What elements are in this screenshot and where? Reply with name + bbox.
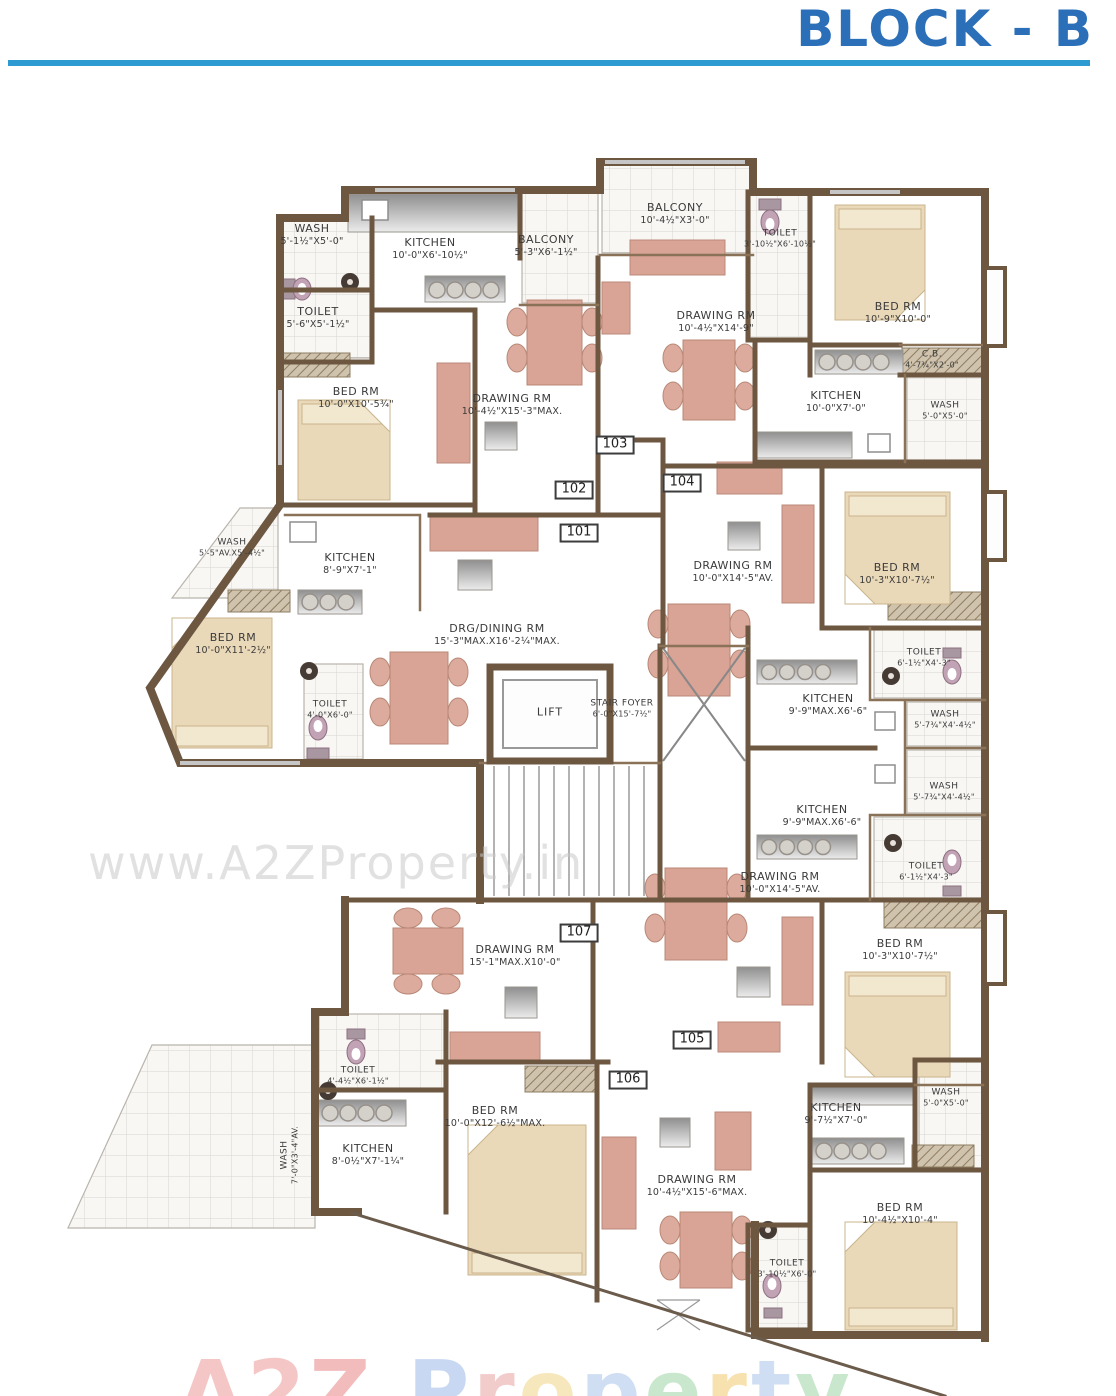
unit-number-106: 106 <box>609 1071 648 1090</box>
room-label-drawingrm-28: DRAWING RM15'-1"MAX.X10'-0" <box>469 943 560 969</box>
watermark-letter: r <box>706 1342 751 1396</box>
room-label-toilet-3: TOILET5'-6"X5'-1½" <box>286 305 349 331</box>
room-label-bedrm-30: BED RM10'-0"X12'-6½"MAX. <box>445 1104 546 1130</box>
watermark-letter: o <box>519 1342 581 1396</box>
room-label-cb-10: C.B.4'-7¾"X2'-0" <box>905 349 959 370</box>
watermark-letter: 2 <box>247 1342 309 1396</box>
room-label-wash-0: WASH5'-1½"X5'-0" <box>280 222 343 248</box>
room-label-bedrm-36: BED RM10'-4½"X10'-4" <box>862 1201 938 1227</box>
floorplan-drawing <box>0 0 1116 1396</box>
room-label-kitchen-21: KITCHEN9'-9"MAX.X6'-6" <box>789 692 868 718</box>
room-label-wash-12: WASH5'-0"X5'-0" <box>922 400 968 421</box>
watermark-letter: Z <box>309 1342 374 1396</box>
room-label-kitchen-24: KITCHEN9'-9"MAX.X6'-6" <box>783 803 862 829</box>
room-label-kitchen-34: KITCHEN9'-7½"X7'-0" <box>804 1101 867 1127</box>
watermark-letter: p <box>580 1342 644 1396</box>
stair-foyer-label: STAIR FOYER6'-0"X15'-7½" <box>590 698 653 719</box>
watermark-letter: y <box>795 1342 854 1396</box>
room-label-wash-13: WASH5'-5"AV.X5'-4½" <box>199 537 265 558</box>
room-label-wash-35: WASH5'-0"X5'-0" <box>923 1087 969 1108</box>
watermark-letter: e <box>645 1342 706 1396</box>
room-label-balcony-2: BALCONY5'-3"X6'-1½" <box>514 233 577 259</box>
room-label-kitchen-14: KITCHEN8'-9"X7'-1" <box>323 551 377 577</box>
unit-number-105: 105 <box>673 1031 712 1050</box>
room-label-bedrm-15: BED RM10'-0"X11'-2½" <box>195 631 271 657</box>
room-label-toilet-5: TOILET3'-10½"X6'-10½" <box>744 228 816 249</box>
watermark-letter: P <box>408 1342 474 1396</box>
unit-number-107: 107 <box>560 924 599 943</box>
unit-number-102: 102 <box>555 481 594 500</box>
unit-number-104: 104 <box>663 474 702 493</box>
room-label-toilet-17: TOILET4'-0"X6'-0" <box>307 699 353 720</box>
room-label-toilet-37: TOILET3'-10½"X6'-0" <box>758 1258 817 1279</box>
room-label-wash-22: WASH5'-7¾"X4'-4½" <box>914 709 975 730</box>
watermark-letter: t <box>751 1342 795 1396</box>
room-label-kitchen-31: KITCHEN8'-0½"X7'-1¼" <box>332 1142 405 1168</box>
room-label-toilet-29: TOILET4'-4½"X6'-1½" <box>327 1065 388 1086</box>
room-label-toilet-20: TOILET6'-1½"X4'-3" <box>897 647 951 668</box>
room-label-wash-23: WASH5'-7¾"X4'-4½" <box>913 781 974 802</box>
watermark-letter: A <box>178 1342 247 1396</box>
room-label-balcony-4: BALCONY10'-4½"X3'-0" <box>640 201 709 227</box>
room-label-bedrm-27: BED RM10'-3"X10'-7½" <box>862 937 938 963</box>
room-label-drawingrm-26: DRAWING RM10'-0"X14'-5"AV. <box>740 870 821 896</box>
room-label-drawingrm-33: DRAWING RM10'-4½"X15'-6"MAX. <box>647 1173 748 1199</box>
room-label-drgdining-16: DRG/DINING RM15'-3"MAX.X16'-2¼"MAX. <box>434 622 560 648</box>
lift-label: LIFT <box>537 706 563 719</box>
watermark-center: www.A2ZProperty.in <box>88 836 584 890</box>
room-label-drawingrm-7: DRAWING RM10'-4½"X14'-9" <box>676 309 755 335</box>
room-label-bedrm-6: BED RM10'-9"X10'-0" <box>865 300 931 326</box>
room-label-drawingrm-18: DRAWING RM10'-0"X14'-5"AV. <box>693 559 774 585</box>
room-label-toilet-25: TOILET6'-1½"X4'-3" <box>899 861 953 882</box>
room-label-kitchen-1: KITCHEN10'-0"X6'-10½" <box>392 236 468 262</box>
watermark-letter: r <box>473 1342 518 1396</box>
bottom-watermark: A2Z Property <box>178 1342 854 1396</box>
room-label-bedrm-8: BED RM10'-0"X10'-5¾" <box>318 385 394 411</box>
watermark-letter <box>374 1342 407 1396</box>
floor-plan-page: BLOCK - B <box>0 0 1116 1396</box>
room-label-bedrm-19: BED RM10'-3"X10'-7½" <box>859 561 935 587</box>
room-label-drawingrm-9: DRAWING RM10'-4½"X15'-3"MAX. <box>462 392 563 418</box>
room-label-kitchen-11: KITCHEN10'-0"X7'-0" <box>806 389 866 415</box>
unit-number-101: 101 <box>560 524 599 543</box>
room-label-wash-32: WASH7'-0"X3'-4"AV. <box>279 1126 300 1184</box>
unit-number-103: 103 <box>596 436 635 455</box>
